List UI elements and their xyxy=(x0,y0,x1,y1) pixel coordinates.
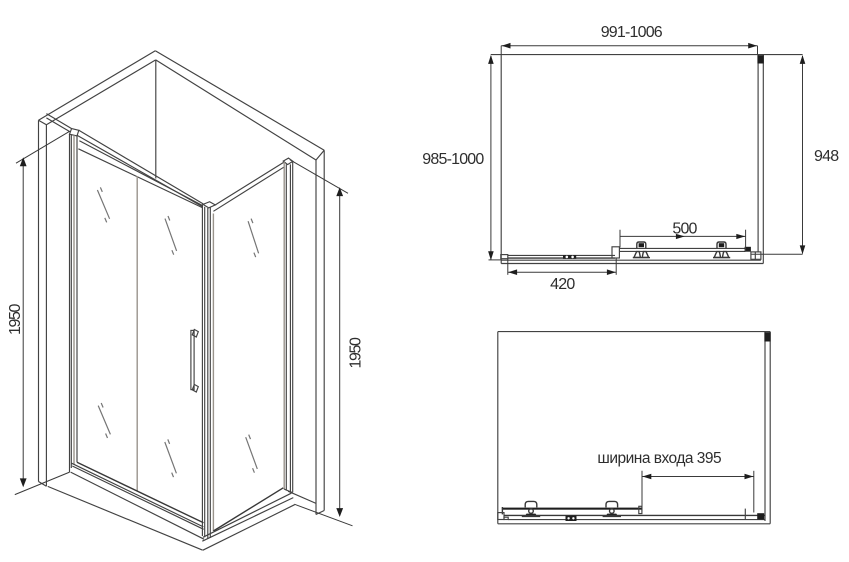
svg-text:991-1006: 991-1006 xyxy=(601,24,663,41)
svg-text:420: 420 xyxy=(550,276,575,293)
svg-text:1950: 1950 xyxy=(347,337,364,368)
svg-text:ширина входа 395: ширина входа 395 xyxy=(597,450,721,467)
svg-text:500: 500 xyxy=(672,221,697,238)
svg-text:1950: 1950 xyxy=(7,304,24,335)
svg-text:948: 948 xyxy=(814,148,839,165)
svg-text:985-1000: 985-1000 xyxy=(422,151,484,168)
